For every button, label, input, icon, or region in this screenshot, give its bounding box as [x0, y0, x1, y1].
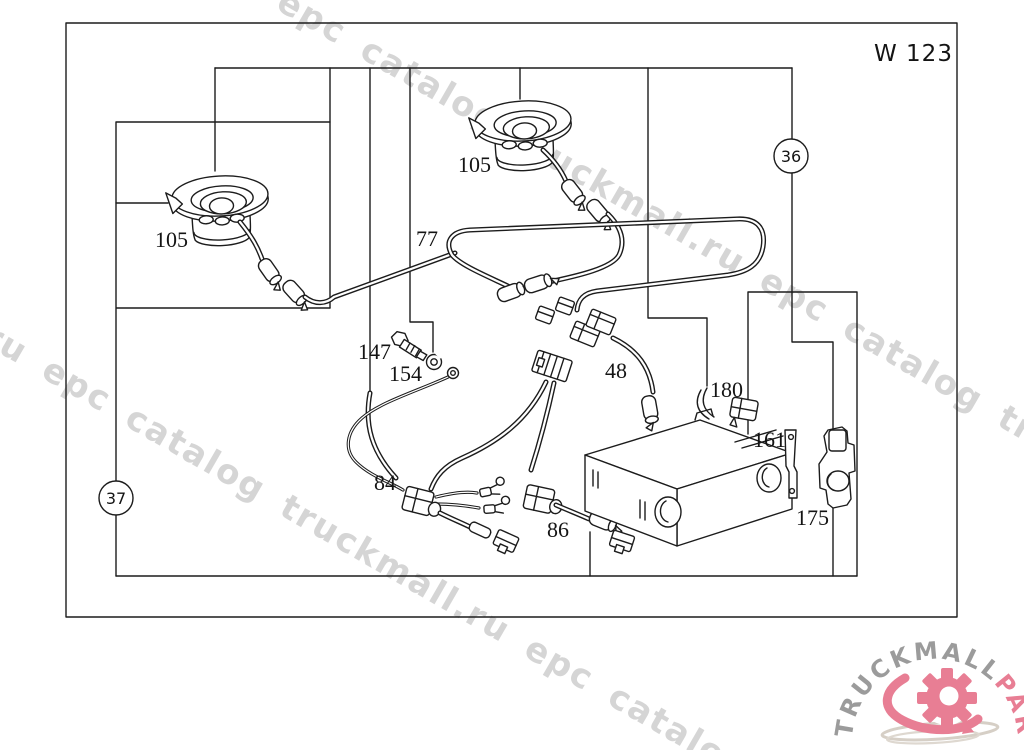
bracket-175: [819, 427, 855, 508]
label-connector-harness[interactable]: 48: [605, 358, 627, 383]
label-clamp-180[interactable]: 180: [710, 377, 743, 402]
label-speaker-top[interactable]: 105: [458, 152, 491, 177]
label-speaker-left[interactable]: 105: [155, 227, 188, 252]
harness-84: [348, 377, 519, 556]
callout-36-label[interactable]: 36: [781, 147, 801, 166]
callout-36[interactable]: 36: [774, 139, 808, 173]
callout-37[interactable]: 37: [99, 481, 133, 515]
label-antenna-cable[interactable]: 77: [416, 226, 438, 251]
label-bracket-161[interactable]: 161: [753, 427, 786, 452]
ring-terminal: [448, 368, 459, 379]
label-harness-86[interactable]: 86: [547, 517, 569, 542]
leader-screw-washer: [410, 68, 433, 352]
callout-37-label[interactable]: 37: [106, 489, 126, 508]
label-screw[interactable]: 147: [358, 339, 391, 364]
screw-147: [389, 331, 429, 361]
washer-154: [427, 353, 442, 370]
label-bracket-175[interactable]: 175: [796, 505, 829, 530]
speaker-left: [165, 174, 455, 314]
parts-catalog-page: truckmall.ru epc catalog truckmall.ru ep…: [0, 0, 1024, 750]
parts-diagram: truckmall.ru epc catalog truckmall.ru ep…: [0, 0, 1024, 750]
model-code: W 123: [874, 41, 953, 67]
label-washer[interactable]: 154: [389, 361, 422, 386]
label-harness-84[interactable]: 84: [374, 470, 396, 495]
radio-knob-right: [757, 464, 781, 492]
